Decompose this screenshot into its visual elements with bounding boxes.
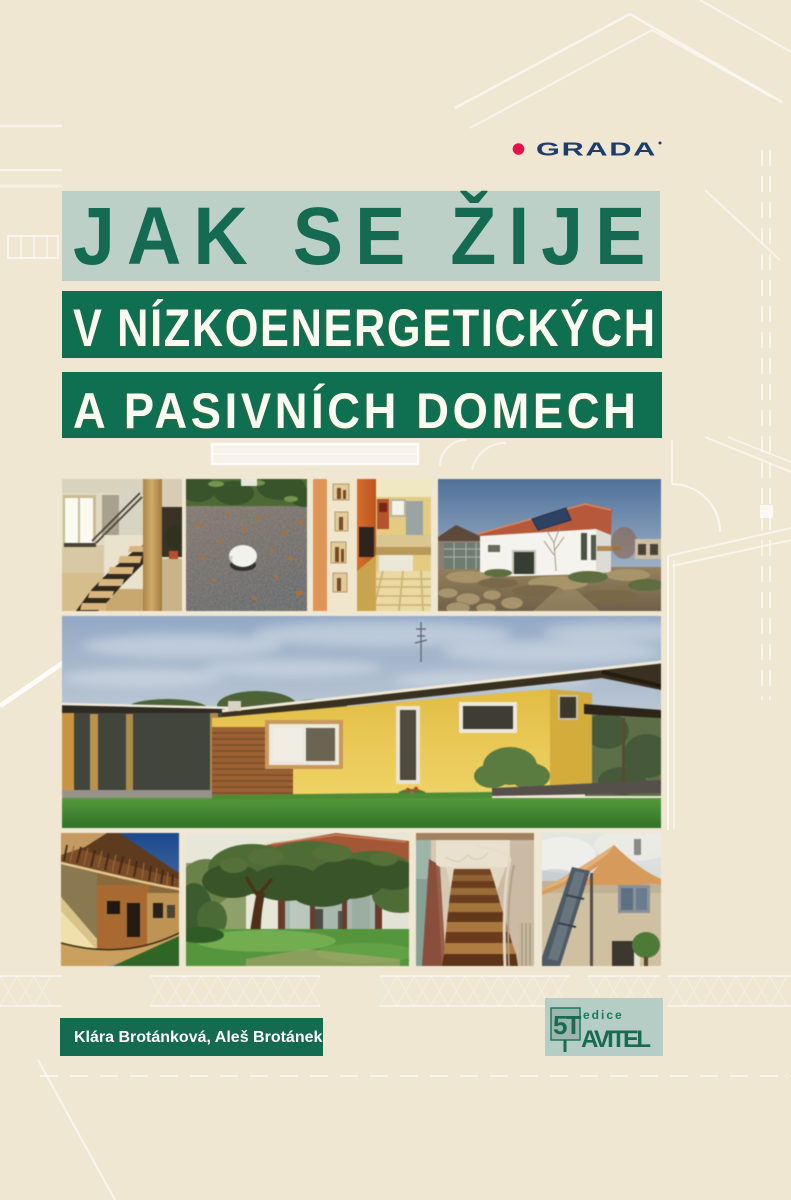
svg-text:AVITEL: AVITEL xyxy=(581,1026,651,1053)
svg-text:5T: 5T xyxy=(553,1010,581,1040)
svg-text:GRADA: GRADA xyxy=(536,139,657,160)
svg-text:edice: edice xyxy=(583,1008,624,1022)
